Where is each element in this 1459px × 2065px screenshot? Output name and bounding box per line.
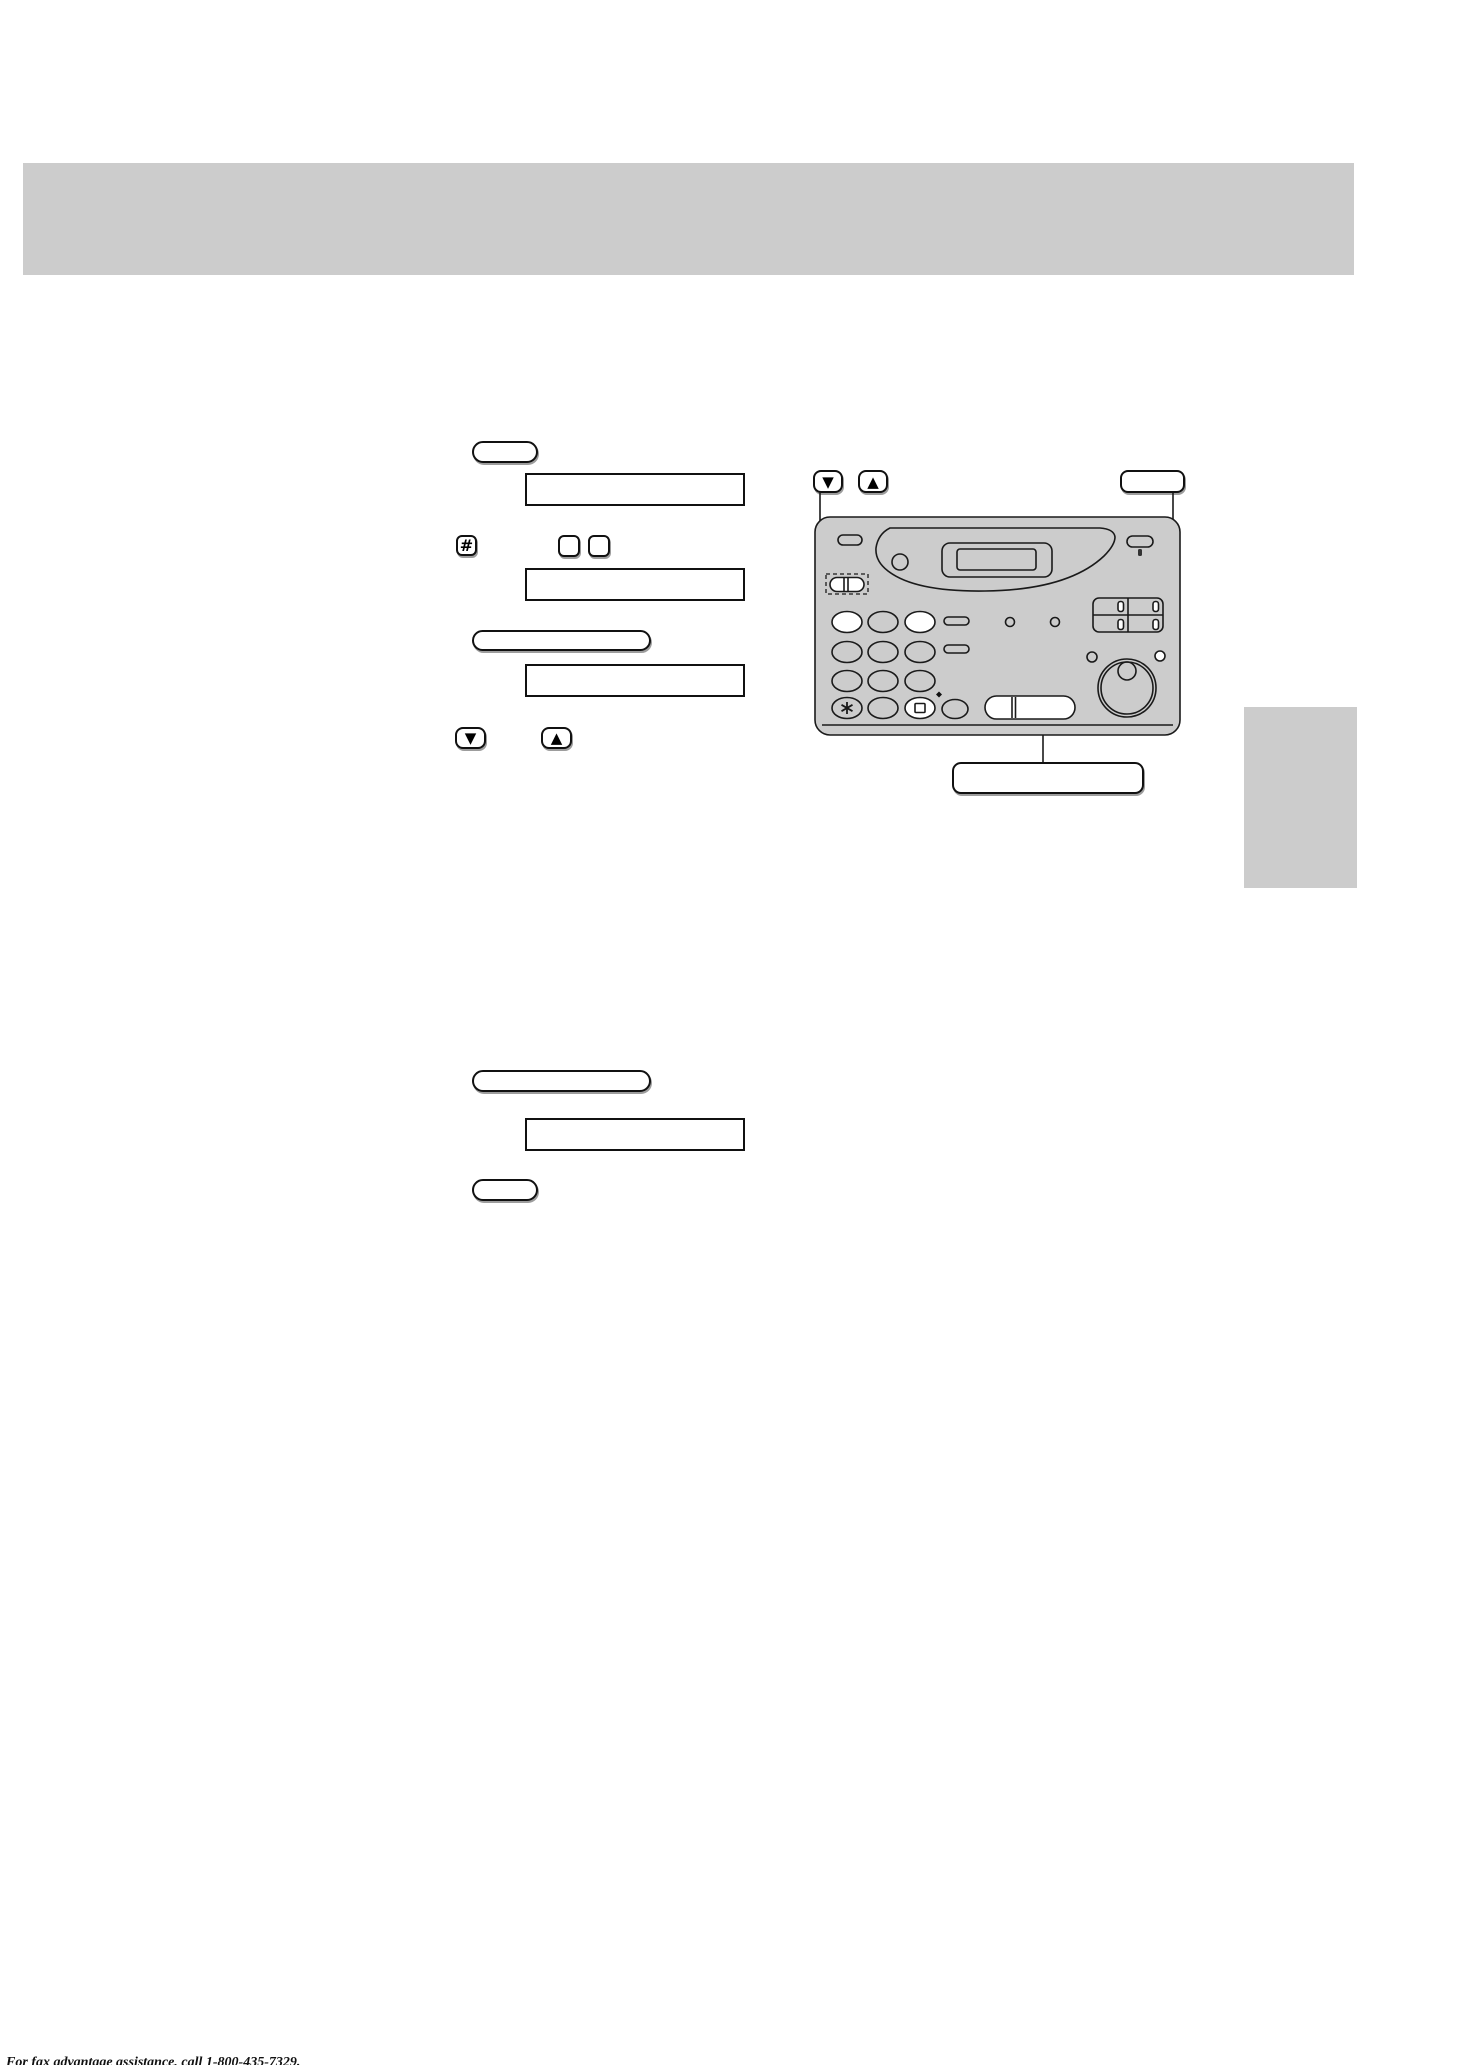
grid-bar-icon (1118, 602, 1124, 612)
keypad-key-3 (905, 612, 935, 633)
display-box-4 (525, 1118, 745, 1151)
up-arrow-key-icon: ▲ (541, 727, 572, 749)
header-banner (23, 163, 1354, 275)
manual-page: # ▼ ▲ ▼ ▲ (0, 0, 1459, 2065)
display-box-1 (525, 473, 745, 506)
grid-bar-icon (1153, 602, 1159, 612)
code-digit-key-1 (558, 535, 580, 557)
bottom-callout-button (952, 762, 1144, 794)
menu-key-button (472, 441, 538, 463)
hash-key-icon: # (456, 535, 477, 556)
program-key-button-2 (472, 1070, 651, 1092)
keypad-square-key (905, 698, 935, 719)
grid-bar-icon (1118, 620, 1124, 630)
program-key-button (472, 630, 651, 651)
small-key-button-2 (472, 1179, 538, 1201)
top-right-mark (1138, 549, 1142, 556)
tone-button (1155, 651, 1165, 661)
down-arrow-key-icon: ▼ (455, 727, 486, 749)
display-box-2 (525, 568, 745, 601)
navigator-key (830, 578, 864, 592)
start-key-bar (985, 696, 1075, 719)
display-box-3 (525, 664, 745, 697)
fax-machine-illustration (780, 460, 1200, 810)
side-tab (1244, 707, 1357, 888)
grid-bar-icon (1153, 620, 1159, 630)
code-digit-key-2 (588, 535, 610, 557)
footer-assistance-text: For fax advantage assistance, call 1-800… (6, 2053, 426, 2065)
keypad-key-1 (832, 612, 862, 633)
